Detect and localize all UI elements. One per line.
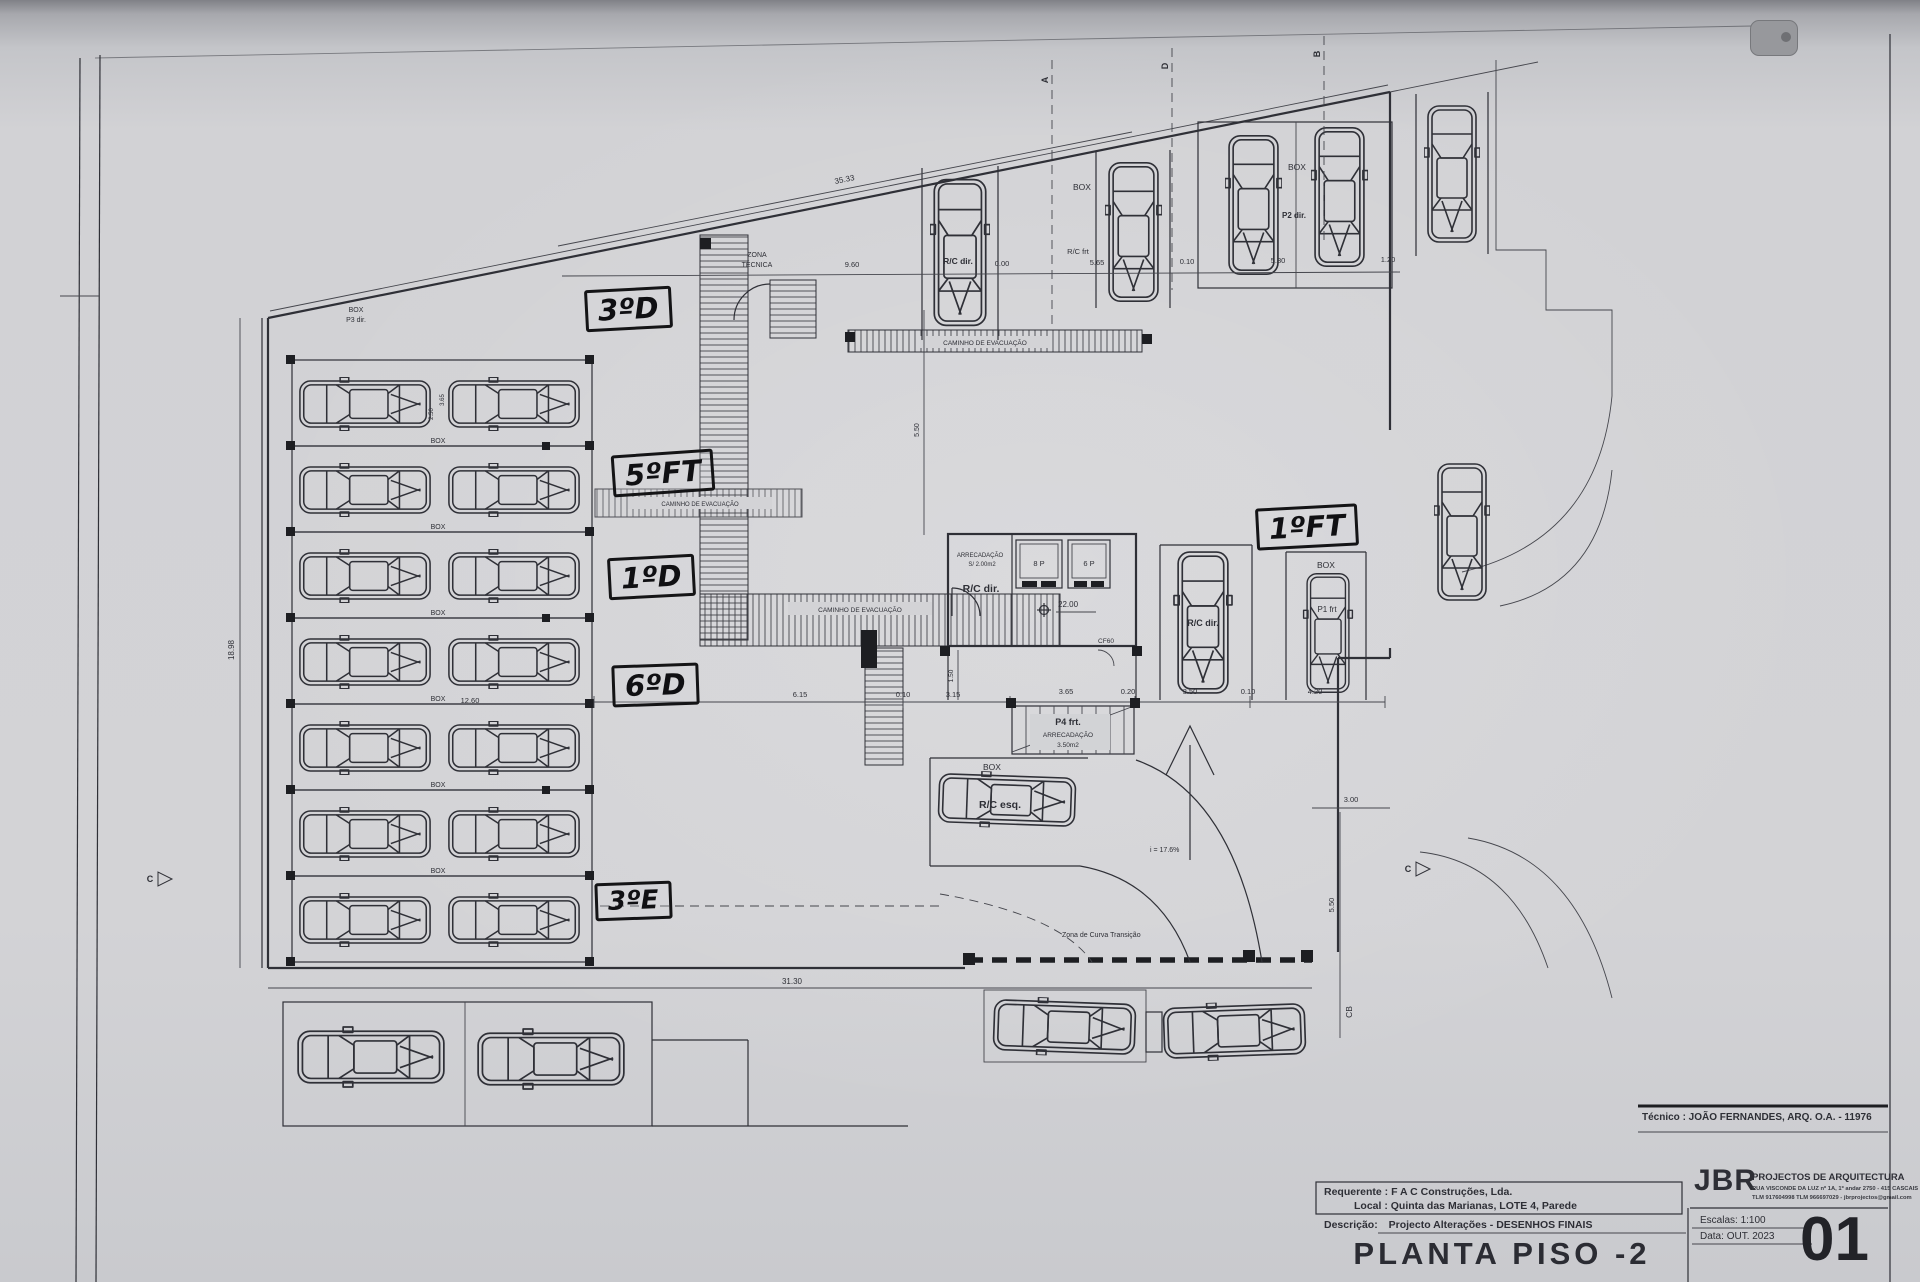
escala-value: 1:100 [1741,1215,1766,1226]
local-label: Local : [1354,1200,1388,1212]
section-marker-c-left: C [147,874,154,884]
dim: 9.60 [845,260,860,269]
dim: 0.10 [896,690,911,699]
dim: 0.00 [995,259,1010,268]
dim: 0.10 [1241,687,1256,696]
dim-3-00: 3.00 [1344,795,1359,804]
dim-18-98: 18.98 [227,639,236,660]
requerente-label: Requerente : [1324,1186,1388,1198]
arrecadacao-label: ARRECADAÇÃO [957,552,1004,559]
box-label: BOX [349,307,364,314]
dim: 3.65 [1059,687,1074,696]
handwritten-unit-3e: 3ºE [594,881,672,922]
dim: 5.50 [914,423,921,437]
escala-row: Escalas: 1:100 [1700,1215,1766,1226]
dim: 0.20 [1121,687,1136,696]
descricao-label: Descrição: [1324,1219,1378,1231]
box-label: BOX [1073,182,1091,192]
dim: 1.20 [1381,255,1396,264]
drawing-title: PLANTA PISO -2 [1316,1236,1688,1272]
local-value: Quinta das Marianas, LOTE 4, Parede [1391,1200,1577,1212]
dim-12-60: 12.60 [461,696,480,705]
stall-label: P1 frt [1317,605,1337,614]
section-marker-d: D [1160,62,1170,69]
handwritten-unit-5ft: 5ºFT [611,448,716,497]
stall-code: P3 dir. [346,317,366,324]
dim-35-33: 35.33 [834,173,856,186]
stall-dim: 2.50 [429,408,435,420]
box-label: BOX [431,782,446,789]
data-value: OUT. 2023 [1727,1231,1775,1242]
firm-address: RUA VISCONDE DA LUZ nº 1A, 1º andar 2750… [1752,1186,1918,1192]
data-row: Data: OUT. 2023 [1700,1231,1775,1242]
dim: 0.10 [1180,257,1195,266]
dim: 1.50 [948,669,955,682]
box-label: BOX [431,868,446,875]
arrecadacao-label: ARRECADAÇÃO [1043,730,1093,739]
section-marker-cb: CB [1344,1006,1354,1018]
firm-contacts: TLM 917604998 TLM 966697029 - jbrproject… [1752,1195,1912,1201]
section-marker-a: A [1040,76,1050,83]
zona-curva: Zona de Curva Transição [1062,932,1141,939]
sheet-border [60,26,1890,1282]
firm-name: PROJECTOS DE ARQUITECTURA [1752,1172,1905,1183]
stall-label: R/C dir. [1187,618,1219,628]
street-right [1420,60,1612,998]
descricao-value: Projecto Alterações - DESENHOS FINAIS [1389,1219,1593,1231]
requerente-row: Requerente : F A C Construções, Lda. [1324,1186,1512,1198]
box-label: BOX [431,438,446,445]
box-label: BOX [983,762,1001,772]
dim: 5.65 [1090,258,1105,267]
ramp-slope: i = 17.6% [1150,847,1179,854]
stall-dim: 3.65 [440,394,446,406]
requerente-value: F A C Construções, Lda. [1391,1186,1512,1198]
zona-tecnica-label: TÉCNICA [742,260,773,269]
dim-31-30: 31.30 [782,977,803,986]
binder-clip [1750,20,1798,56]
bottom-parking [283,990,1306,1126]
box-label: BOX [1288,162,1306,172]
door-cf60: CF60 [1098,638,1114,645]
box-label: BOX [1317,560,1335,570]
lift-label: 8 P [1033,559,1044,568]
stall-label: P4 frt. [1055,717,1081,727]
firm-initials: JBR [1694,1164,1757,1198]
dim: 5.50 [1327,898,1336,913]
handwritten-unit-1ft: 1ºFT [1255,503,1359,550]
caminho-evacuacao-label: CAMINHO DE EVACUAÇÃO [818,605,902,614]
box-label: BOX [431,696,446,703]
right-parking: R/C dir. BOX P1 frt [1160,545,1366,700]
stall-label: R/C frt [1067,247,1090,256]
local-row: Local : Quinta das Marianas, LOTE 4, Par… [1354,1200,1577,1212]
descricao-row: Descrição: Projecto Alterações - DESENHO… [1324,1219,1592,1231]
caminho-evacuacao-label: CAMINHO DE EVACUAÇÃO [943,338,1027,347]
stall-label: R/C esq. [979,799,1021,811]
box-label: BOX [431,610,446,617]
left-parking-block: BOX P3 dir. BOX BOX BOX BOX BOX BOX 3.65… [286,307,594,966]
data-label: Data: [1700,1231,1724,1242]
tecnico-row: Técnico : JOÃO FERNANDES, ARQ. O.A. - 11… [1642,1112,1872,1123]
plan-drawing: BOX P3 dir. BOX BOX BOX BOX BOX BOX 3.65… [0,0,1920,1282]
dim: 5.80 [1271,256,1286,265]
sheet-number: 01 [1800,1204,1869,1275]
handwritten-unit-1d: 1ºD [607,554,696,600]
photographed-floor-plan: BOX P3 dir. BOX BOX BOX BOX BOX BOX 3.65… [0,0,1920,1282]
arrecadacao-area: S/ 2.00m2 [968,562,996,568]
lift-label: 6 P [1083,559,1094,568]
arrecadacao-area: 3.50m2 [1057,742,1079,749]
section-marker-b: B [1312,50,1322,57]
stall-label: R/C dir. [943,256,973,266]
room-label: R/C dir. [963,583,1000,595]
zona-tecnica-label: ZONA [747,252,767,259]
level-22-00: 22.00 [1058,600,1079,609]
section-marker-c-right: C [1405,864,1412,874]
handwritten-unit-6d: 6ºD [611,663,699,708]
escala-label: Escalas: [1700,1215,1738,1226]
box-rc-esq: BOX R/C esq. i = 17.6% Zona de Curva Tra… [600,726,1262,962]
dim: 6.15 [793,690,808,699]
stall-label: P2 dir. [1282,211,1306,220]
handwritten-unit-3d: 3ºD [584,286,673,332]
box-label: BOX [431,524,446,531]
caminho-evacuacao-label: CAMINHO DE EVACUAÇÃO [661,501,739,508]
